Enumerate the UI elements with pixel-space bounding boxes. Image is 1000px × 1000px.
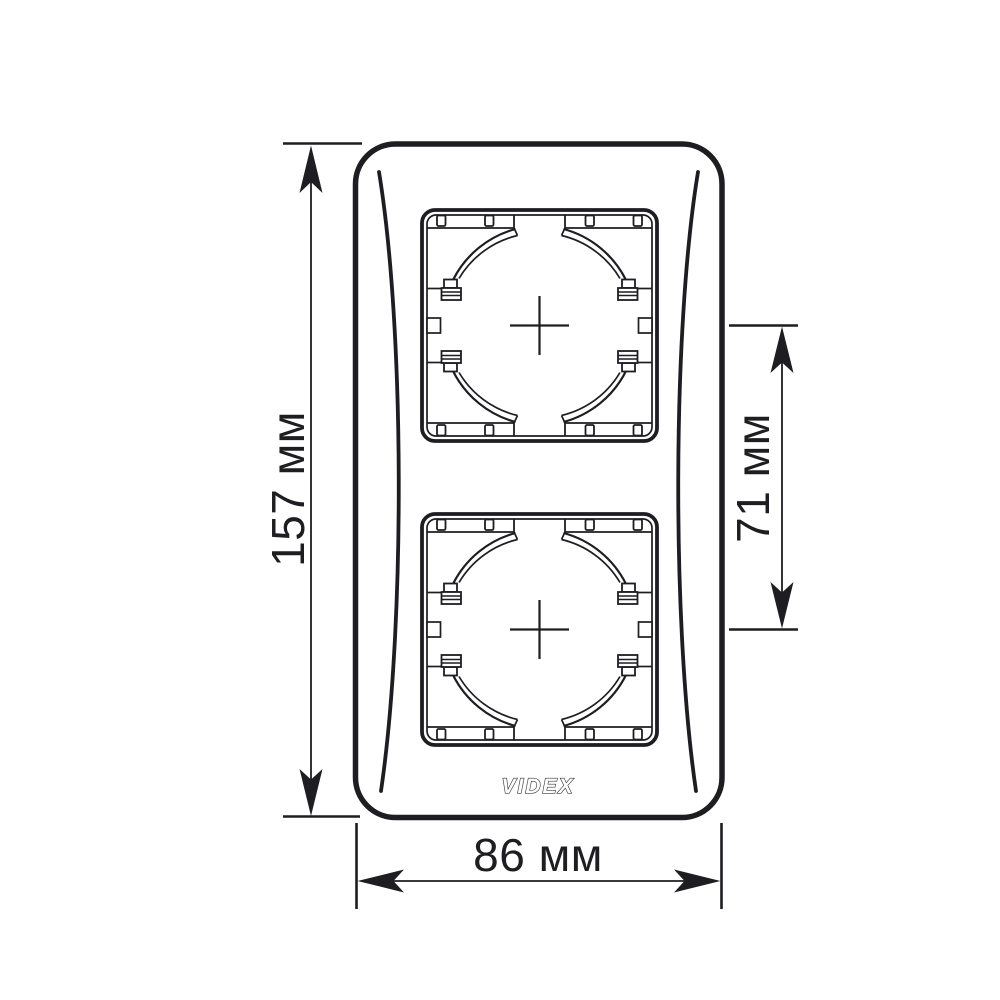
width-dimension-label: 86 мм [473,829,603,881]
height-dimension-label: 157 мм [262,411,314,567]
module-spacing-dimension-label: 71 мм [727,413,779,543]
width-dimension: 86 мм [357,823,722,909]
frame-dimension-diagram: VIDEX 157 мм 71 мм 86 мм [0,0,1000,1000]
module-aperture-bottom [422,514,657,745]
dimension-drawing-canvas: VIDEX 157 мм 71 мм 86 мм [0,0,1000,1000]
videx-logo: VIDEX [501,775,574,798]
height-dimension: 157 мм [262,144,362,817]
faceplate-frame: VIDEX [356,144,723,818]
module-spacing-dimension: 71 мм [727,326,798,630]
module-aperture-top [422,210,657,441]
